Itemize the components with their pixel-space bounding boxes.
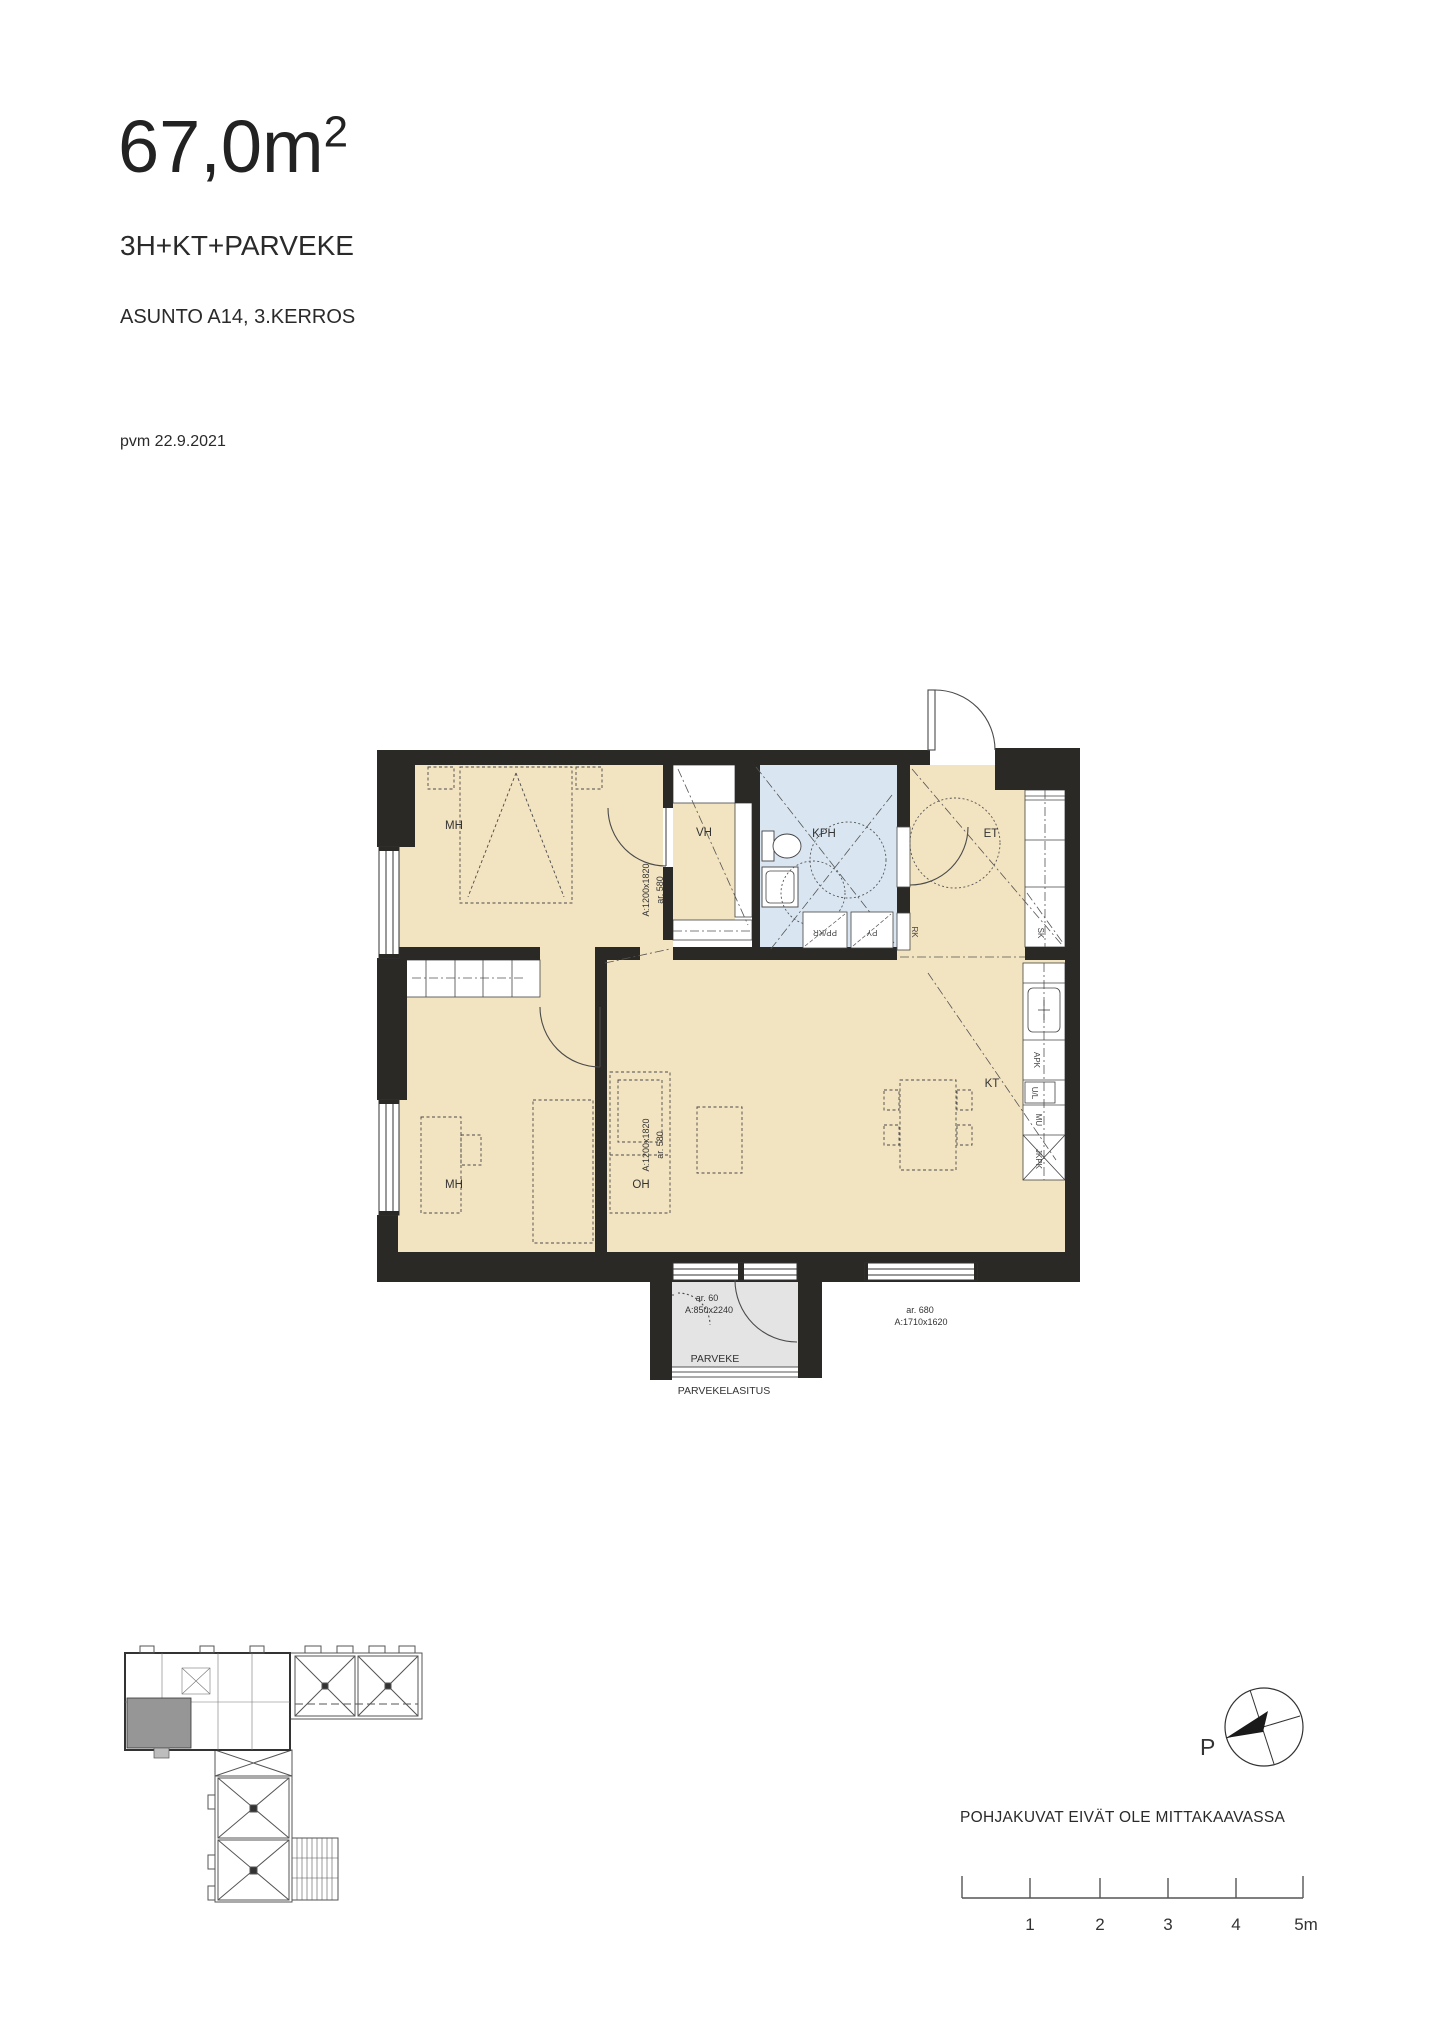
area-value: 67,0m — [118, 105, 324, 188]
disclaimer-text: POHJAKUVAT EIVÄT OLE MITTAKAAVASSA — [960, 1809, 1285, 1827]
scale-tick-4: 4 — [1231, 1915, 1240, 1934]
toilet-bowl — [773, 834, 801, 858]
label-dishwasher: APK — [1032, 1052, 1041, 1069]
label-fridge: JKPK — [1034, 1149, 1043, 1170]
scale-tick-2: 2 — [1095, 1915, 1104, 1934]
label-electrical: RK — [910, 926, 919, 938]
area-title: 67,0m2 — [118, 104, 348, 189]
bottom-window — [865, 1263, 977, 1280]
label-entry: ET — [984, 828, 999, 840]
building-overview — [100, 1620, 450, 1955]
scale-bar: 1 2 3 4 5m — [950, 1868, 1320, 1943]
label-bedroom2: MH — [445, 1179, 463, 1191]
label-closet-hall: VH — [696, 827, 712, 839]
main-floorplan: MH VH KPH ET MH OH KT PARVEKE SK APK U/L… — [300, 675, 1110, 1415]
area-exponent: 2 — [324, 107, 348, 156]
balcony-ar: ar. 60 — [696, 1293, 719, 1303]
label-bathroom: KPH — [812, 828, 836, 840]
entry-door — [928, 690, 995, 765]
north-compass: P — [1190, 1665, 1325, 1795]
label-bedroom1: MH — [445, 820, 463, 832]
scale-tick-3: 3 — [1163, 1915, 1172, 1934]
label-washer: PP/KR — [813, 928, 837, 937]
label-microwave: MU — [1034, 1114, 1043, 1127]
label-living: OH — [632, 1179, 649, 1191]
toilet-tank — [762, 831, 774, 861]
left-window-1 — [379, 847, 399, 958]
bottom-window-ar: ar. 680 — [906, 1305, 934, 1315]
north-label: P — [1200, 1734, 1215, 1760]
bottom-window-dim: A:1710x1620 — [894, 1317, 947, 1327]
plan-date: pvm 22.9.2021 — [120, 433, 226, 451]
left-window-2 — [379, 1100, 399, 1215]
label-entry-closet: SK — [1036, 928, 1045, 939]
balcony-door-window — [673, 1263, 797, 1280]
left-window1-ar: ar. 580 — [655, 876, 665, 904]
label-kitchen: KT — [985, 1078, 1000, 1090]
label-balcony: PARVEKE — [691, 1353, 740, 1365]
label-dryer: PY — [866, 928, 877, 937]
electrical-cabinet — [897, 913, 910, 950]
glazing-label: PARVEKELASITUS — [678, 1385, 770, 1397]
scale-tick-5: 5m — [1294, 1915, 1318, 1934]
balcony-door-dim: A:850x2240 — [685, 1305, 733, 1315]
label-oven: U/L — [1030, 1087, 1039, 1100]
scale-tick-1: 1 — [1025, 1915, 1034, 1934]
left-window2-ar: ar. 580 — [655, 1131, 665, 1159]
left-window2-dim: A:1200x1820 — [641, 1118, 651, 1171]
apartment-info: ASUNTO A14, 3.KERROS — [120, 306, 355, 329]
north-needle — [1226, 1711, 1268, 1738]
bathroom-sink — [762, 867, 798, 907]
apartment-type: 3H+KT+PARVEKE — [120, 230, 354, 262]
floorplan-page: { "header": { "area_value": "67,0m", "ar… — [0, 0, 1440, 2036]
left-window1-dim: A:1200x1820 — [641, 863, 651, 916]
